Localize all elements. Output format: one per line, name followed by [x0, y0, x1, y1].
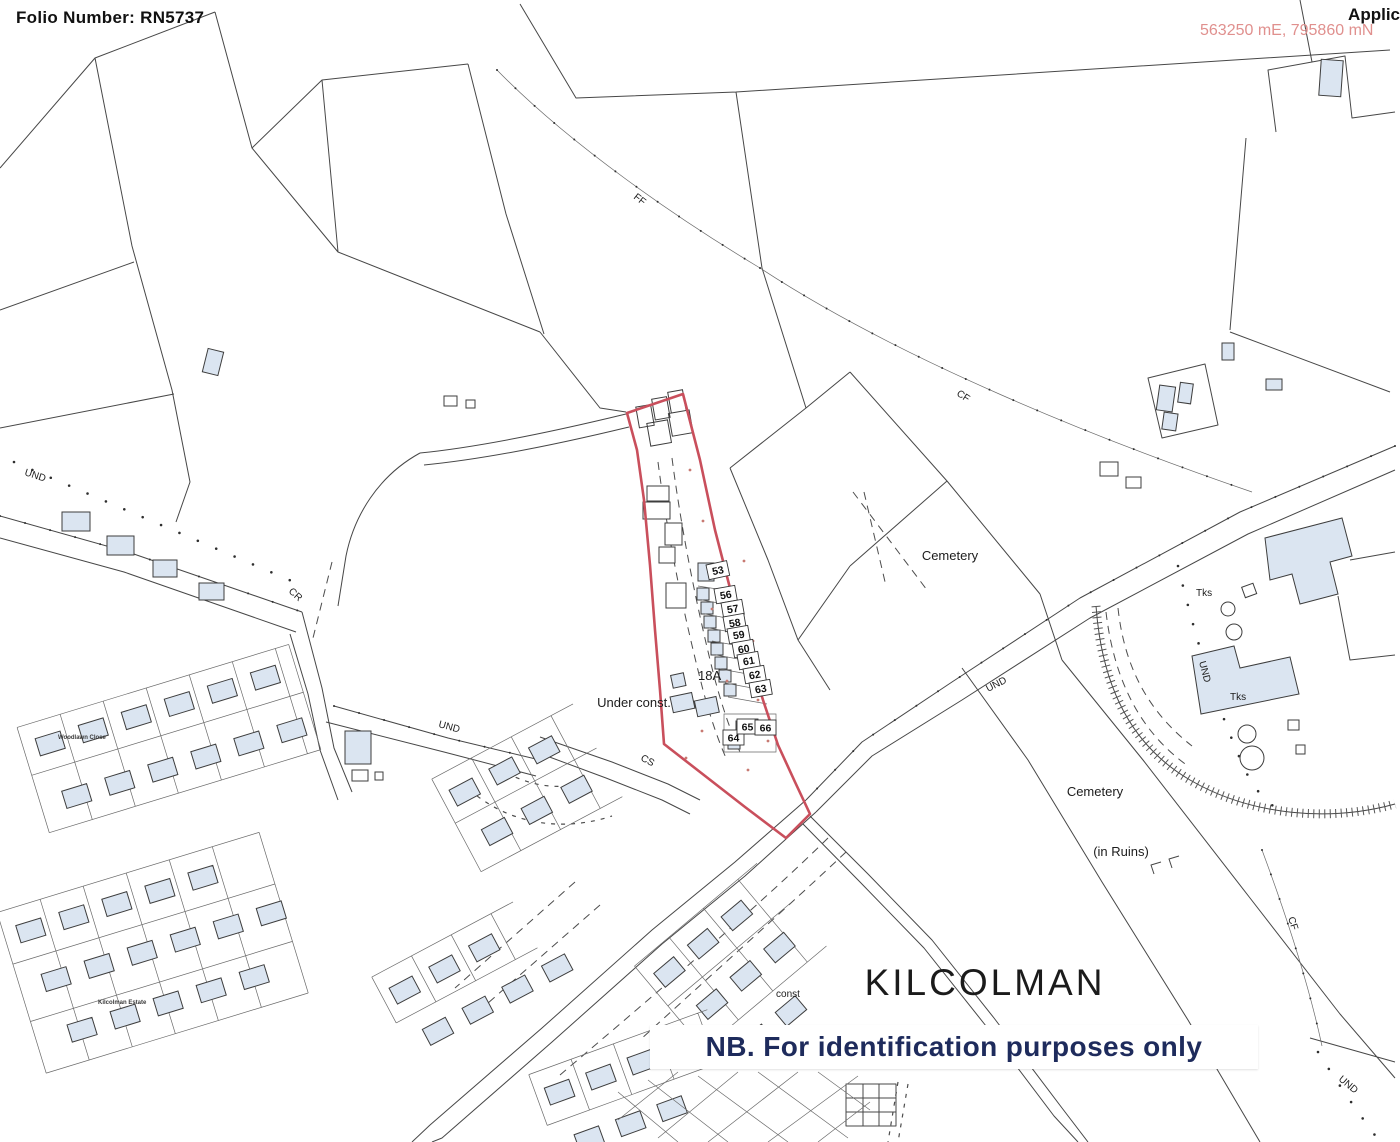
kilcolman-estate-label: Kilcolman Estate: [98, 1000, 147, 1006]
plot-lines: [634, 863, 826, 1049]
cs-label: CS: [639, 753, 657, 769]
cf2-line: [1262, 850, 1322, 1046]
cemetery-upper-boundary: [850, 372, 1062, 660]
large-building: [1265, 518, 1352, 604]
folio-number-label: Folio Number: RN5737: [16, 8, 204, 28]
houses: [389, 908, 573, 1050]
identification-banner: NB. For identification purposes only: [650, 1025, 1258, 1069]
tree-curve-dashes: [1106, 608, 1192, 766]
und-label-mid: UND: [437, 719, 461, 735]
cf-label-lower: CF: [1285, 916, 1300, 932]
ff-label: FF: [631, 192, 647, 208]
field-lines-top-left: [0, 12, 626, 522]
und-label-bottomright: UND: [1336, 1074, 1360, 1096]
grid-coordinates: 563250 mE, 795860 mN: [1200, 22, 1373, 40]
tank: [1238, 725, 1256, 743]
house: [466, 400, 475, 408]
ff-line: [497, 70, 760, 268]
hatch-lines: [618, 1072, 870, 1142]
house: [1178, 382, 1194, 404]
plot-number: 62: [748, 669, 762, 683]
plot-18a-label: 18A: [698, 668, 721, 683]
in-ruins-label: (in Ruins): [1093, 844, 1149, 859]
und-label-topleft: UND: [23, 467, 47, 484]
house: [444, 396, 457, 406]
house: [199, 583, 224, 600]
houses: [449, 731, 592, 850]
main-road: [806, 446, 1395, 812]
house: [107, 536, 134, 555]
ff-dots: [497, 70, 760, 268]
cr-label: CR: [286, 586, 304, 604]
map-canvas: 53 56 57 58 59 60 61 62 63 64 65 66 KILC…: [0, 0, 1400, 1142]
cemetery-upper-label: Cemetery: [922, 548, 979, 563]
houses: [16, 849, 303, 1048]
house: [1242, 583, 1257, 597]
townland-label: KILCOLMAN: [865, 962, 1106, 1003]
estate-center-upper: [432, 704, 623, 872]
house: [1319, 59, 1343, 96]
identification-banner-text: NB. For identification purposes only: [706, 1031, 1203, 1063]
house: [1100, 462, 1118, 476]
house: [62, 512, 90, 531]
house: [1156, 385, 1175, 412]
house: [352, 770, 368, 781]
red-site-boundary: [627, 394, 810, 838]
cemetery-lower-label: Cemetery: [1067, 784, 1124, 799]
cf-dots: [760, 268, 1252, 492]
scanned-folio-map-page: 53 56 57 58 59 60 61 62 63 64 65 66 KILC…: [0, 0, 1400, 1142]
house: [1296, 745, 1305, 754]
plot-number: 66: [760, 723, 772, 735]
field-lines-right: [962, 660, 1395, 1142]
house: [1288, 720, 1299, 730]
under-const-label: Under const.: [597, 695, 671, 710]
road-cr: [0, 516, 352, 800]
plot-number: 65: [742, 722, 754, 734]
plot-number-box: 66: [755, 720, 776, 735]
cr-dashes: [312, 562, 332, 642]
plot-number: 61: [742, 655, 756, 669]
house: [375, 772, 383, 780]
cemetery-dashes: [853, 492, 927, 590]
tank: [1240, 746, 1264, 770]
tks-label-upper: Tks: [1196, 588, 1212, 599]
house: [1162, 412, 1178, 431]
house: [202, 348, 223, 375]
field-lines-top-center: [520, 4, 1390, 268]
gridded-building: [846, 1084, 896, 1126]
cf-label-upper: CF: [954, 388, 971, 404]
estate-west-lower: [372, 892, 573, 1055]
cf2-dots: [1262, 850, 1322, 1046]
plot-number: 56: [719, 589, 733, 603]
woodlawn-close-label: Woodlawn Close: [58, 735, 107, 741]
const-label: const: [776, 989, 800, 1000]
und-dotted-bottomright: [1318, 1052, 1380, 1142]
application-site: [627, 389, 810, 838]
house: [1266, 379, 1282, 390]
estate-kilcolman: [0, 832, 309, 1073]
crosshatch-ground: [618, 1072, 870, 1142]
cf-line: [760, 268, 1252, 492]
plot-number-box: 63: [749, 679, 772, 697]
house: [153, 560, 177, 577]
tank: [1221, 602, 1235, 616]
plot-number: 59: [732, 629, 746, 643]
lane-to-plot: [338, 414, 629, 606]
tree-lined-curve: [1096, 606, 1395, 814]
road-cs: [536, 737, 700, 814]
house: [345, 731, 371, 764]
tank: [1226, 624, 1242, 640]
house: [1126, 477, 1141, 488]
tree-hatching: [1096, 606, 1395, 814]
tks-label-lower: Tks: [1230, 692, 1246, 703]
ruin-symbols: [1151, 856, 1179, 874]
und-label-road: UND: [984, 675, 1008, 695]
plot-number: 63: [754, 683, 768, 697]
house: [1222, 343, 1234, 360]
